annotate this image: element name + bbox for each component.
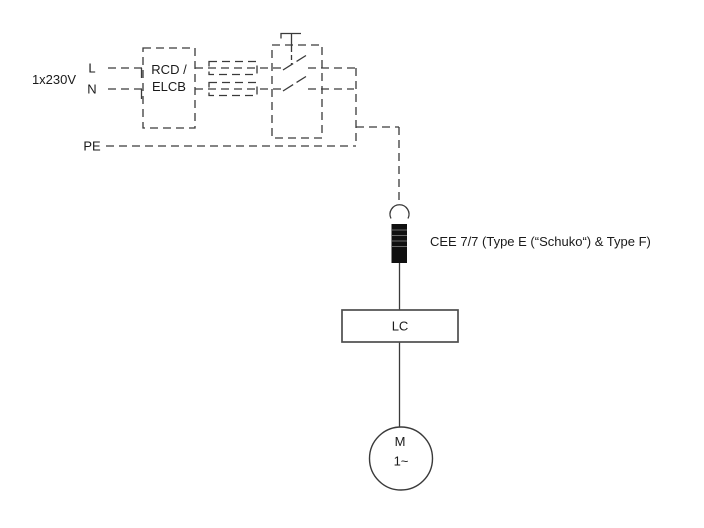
switch-box xyxy=(272,45,322,138)
labels-group: 1x230V L N PE RCD / ELCB CEE 7/7 (Type E… xyxy=(32,61,651,469)
switch-blade-n xyxy=(283,77,306,92)
lc-label: LC xyxy=(392,319,409,334)
plug-group xyxy=(392,224,408,263)
plug-socket-arc xyxy=(390,205,409,219)
cee-plug-label: CEE 7/7 (Type E (“Schuko“) & Type F) xyxy=(430,234,651,249)
wiring-diagram: 1x230V L N PE RCD / ELCB CEE 7/7 (Type E… xyxy=(0,0,704,528)
line-l-label: L xyxy=(88,61,95,76)
schematic-canvas: 1x230V L N PE RCD / ELCB CEE 7/7 (Type E… xyxy=(0,0,704,528)
motor-phase-label: 1~ xyxy=(394,454,409,469)
line-n-label: N xyxy=(87,82,96,97)
switch-blade-l xyxy=(283,56,306,71)
supply-voltage-label: 1x230V xyxy=(32,72,76,87)
line-pe-label: PE xyxy=(83,139,101,154)
rcd-label-line1: RCD / xyxy=(151,62,187,77)
rcd-label-line2: ELCB xyxy=(152,79,186,94)
motor-label: M xyxy=(395,434,406,449)
